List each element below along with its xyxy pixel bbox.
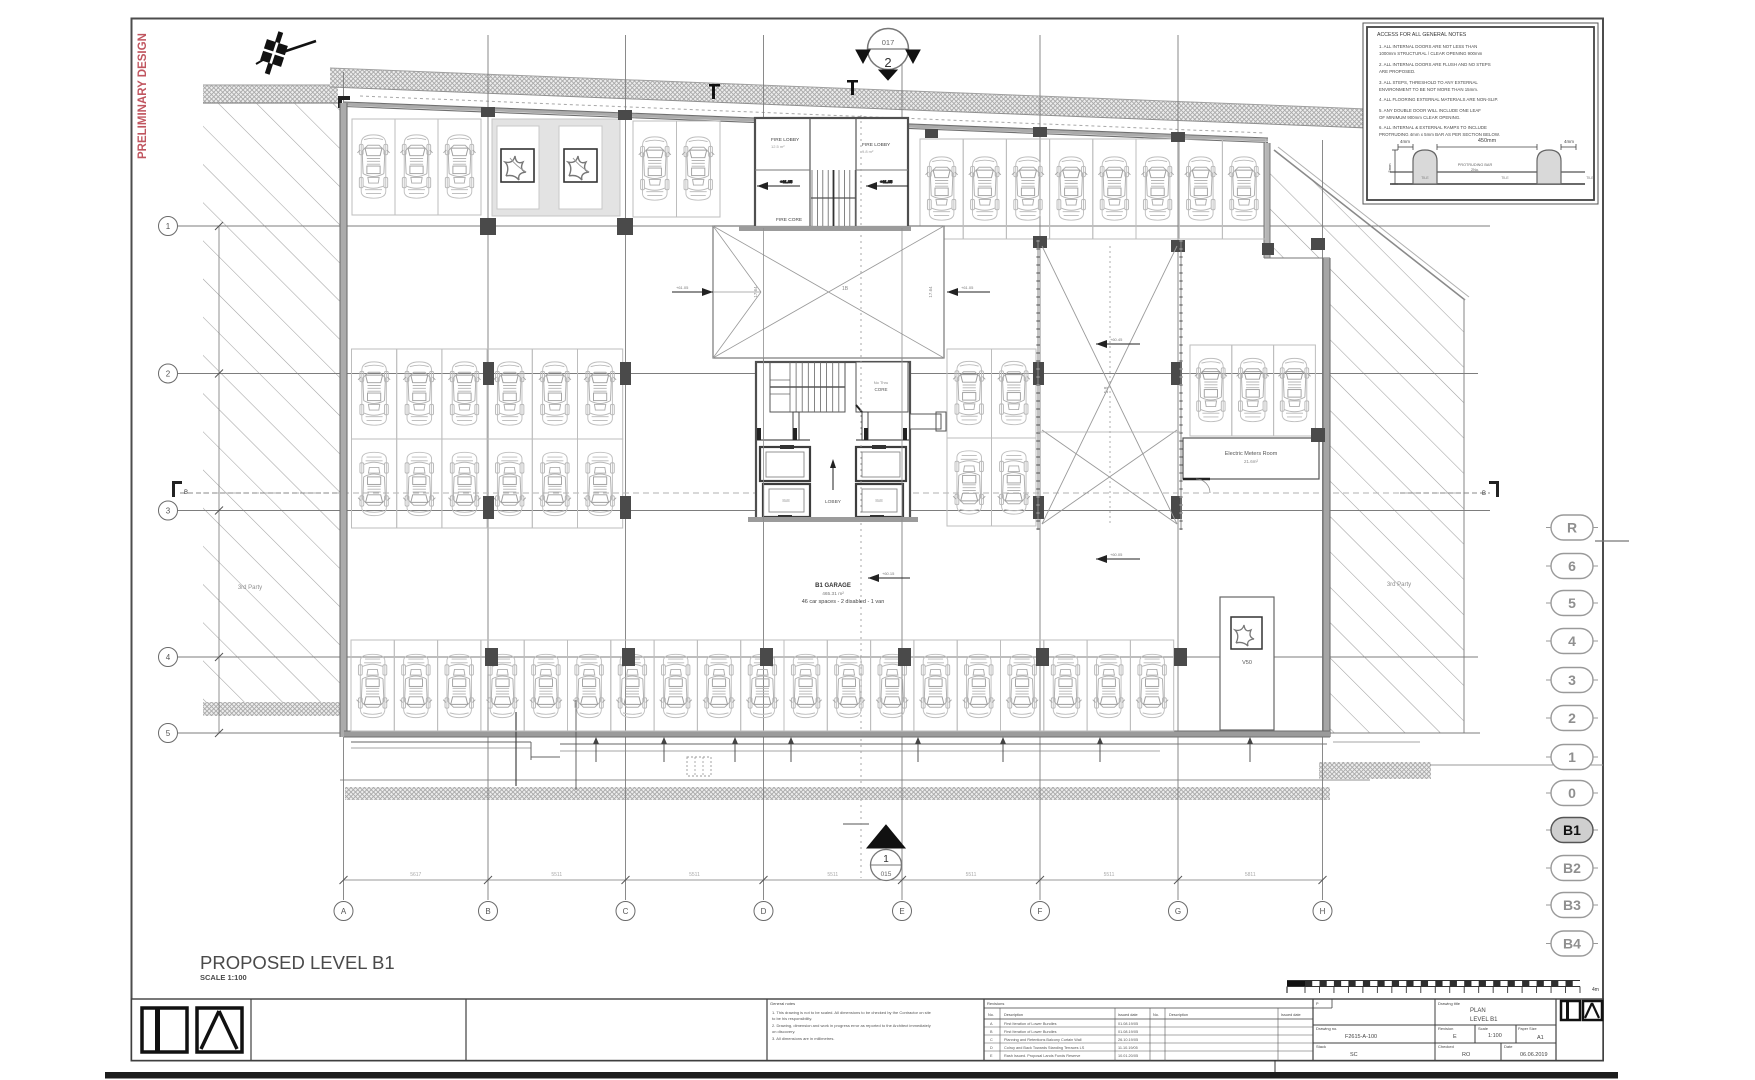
svg-text:5617: 5617	[410, 872, 421, 878]
svg-text:ENVIRONMENT TO BE NOT MORE THA: ENVIRONMENT TO BE NOT MORE THAN 15mm.	[1379, 87, 1478, 92]
svg-text:4mm: 4mm	[1564, 139, 1574, 144]
svg-text:FIRE CORE: FIRE CORE	[776, 217, 802, 223]
svg-text:PROTRUDING 4mm x 5mm BAR AS PE: PROTRUDING 4mm x 5mm BAR AS PER SECTION …	[1379, 132, 1500, 137]
svg-text:11.10.19/05: 11.10.19/05	[1118, 1046, 1138, 1050]
svg-text:3: 3	[1568, 672, 1576, 688]
svg-text:Date: Date	[1504, 1044, 1513, 1049]
svg-text:21.6m²: 21.6m²	[1244, 459, 1259, 464]
svg-text:Checked: Checked	[1438, 1044, 1454, 1049]
svg-text:No Thru: No Thru	[874, 380, 888, 385]
svg-text:01.08.19/05: 01.08.19/05	[1118, 1022, 1138, 1026]
svg-text:5: 5	[166, 729, 171, 738]
svg-text:TILE: TILE	[1501, 176, 1509, 180]
svg-text:015: 015	[881, 871, 892, 878]
svg-text:4: 4	[1568, 633, 1576, 649]
svg-text:R: R	[1567, 520, 1577, 536]
svg-text:RO: RO	[1462, 1052, 1471, 1058]
svg-text:5511: 5511	[551, 872, 562, 878]
svg-text:1:8: 1:8	[1104, 386, 1110, 393]
svg-text:First Iteration of Lower Bundl: First Iteration of Lower Bundles	[1004, 1022, 1057, 1026]
svg-text:B: B	[1482, 491, 1486, 497]
svg-text:Paper Size: Paper Size	[1518, 1027, 1537, 1031]
svg-text:5511: 5511	[827, 872, 838, 878]
svg-text:2: 2	[166, 370, 171, 379]
svg-text:on discovery.: on discovery.	[772, 1029, 795, 1034]
svg-text:6: 6	[1568, 558, 1576, 574]
svg-text:17.64: 17.64	[928, 286, 933, 298]
svg-text:1000mm STRUCTURAL / CLEAR OPEN: 1000mm STRUCTURAL / CLEAR OPENING 900mm	[1379, 51, 1483, 56]
svg-text:3. All dimensions are in mill: 3. All dimensions are in millimetres.	[772, 1036, 834, 1041]
svg-text:B: B	[184, 490, 188, 496]
svg-text:Stack: Stack	[1316, 1044, 1326, 1049]
svg-text:8x8: 8x8	[875, 498, 883, 503]
svg-text:+61.05: +61.05	[676, 285, 689, 290]
svg-text:SCALE 1:100: SCALE 1:100	[200, 973, 247, 982]
svg-text:17.64: 17.64	[753, 286, 758, 298]
svg-text:2No.: 2No.	[1471, 168, 1479, 172]
svg-text:G: G	[1175, 907, 1181, 916]
svg-text:46 car spaces - 2 disabled - 1: 46 car spaces - 2 disabled - 1 van	[802, 599, 885, 605]
svg-text:D: D	[761, 907, 767, 916]
svg-text:B1: B1	[1563, 822, 1581, 838]
svg-text:0: 0	[1568, 785, 1576, 801]
svg-text:PROPOSED LEVEL B1: PROPOSED LEVEL B1	[200, 952, 395, 973]
svg-text:E: E	[1453, 1034, 1457, 1040]
svg-text:First Iteration of Lower Bundl: First Iteration of Lower Bundles	[1004, 1030, 1057, 1034]
svg-text:PLAN: PLAN	[1470, 1008, 1486, 1014]
svg-text:+60.15: +60.15	[882, 571, 895, 576]
svg-text:2: 2	[1568, 710, 1576, 726]
svg-text:C: C	[623, 907, 629, 916]
svg-text:2. ALL INTERNAL DOORS ARE FLU: 2. ALL INTERNAL DOORS ARE FLUSH AND NO S…	[1379, 62, 1491, 67]
svg-text:D: D	[990, 1046, 993, 1050]
svg-text:1: 1	[166, 222, 171, 231]
svg-text:4. ALL FLOORING EXTERNAL MATE: 4. ALL FLOORING EXTERNAL MATERIALS ARE N…	[1379, 97, 1498, 102]
svg-text:5511: 5511	[966, 872, 977, 878]
svg-text:Description: Description	[1004, 1013, 1023, 1017]
svg-text:5. ANY DOUBLE DOOR WILL INCLU: 5. ANY DOUBLE DOOR WILL INCLUDE ONE LEAF	[1379, 108, 1481, 113]
svg-text:C: C	[990, 1038, 993, 1042]
svg-text:+61.05: +61.05	[961, 285, 974, 290]
svg-text:4m: 4m	[1592, 987, 1599, 993]
svg-text:8x8: 8x8	[782, 498, 790, 503]
svg-text:Colruy and Back Towards Standi: Colruy and Back Towards Standing Terrace…	[1004, 1046, 1085, 1050]
svg-text:General notes: General notes	[770, 1001, 795, 1006]
svg-text:Planning and Retentions Balcon: Planning and Retentions Balcony Curtain …	[1004, 1038, 1082, 1042]
svg-text:26.10.19/05: 26.10.19/05	[1118, 1038, 1138, 1042]
svg-text:A: A	[341, 907, 347, 916]
svg-text:+60.45: +60.45	[1110, 337, 1123, 342]
svg-text:2: 2	[884, 55, 891, 70]
svg-text:1: 1	[1568, 749, 1576, 765]
svg-text:CORE: CORE	[874, 387, 887, 392]
svg-text:Drawing title: Drawing title	[1438, 1001, 1461, 1006]
svg-text:5811: 5811	[1245, 872, 1256, 878]
svg-text:B2: B2	[1563, 860, 1581, 876]
svg-text:Revisions: Revisions	[987, 1001, 1004, 1006]
svg-text:1:100: 1:100	[1488, 1033, 1502, 1039]
svg-text:B4: B4	[1563, 936, 1581, 952]
svg-text:1. ALL INTERNAL DOORS ARE NOT: 1. ALL INTERNAL DOORS ARE NOT LESS THAN	[1379, 44, 1477, 49]
svg-text:PRELIMINARY DESIGN: PRELIMINARY DESIGN	[137, 33, 149, 159]
svg-text:E: E	[899, 907, 904, 916]
svg-text:FIRE LOBBY: FIRE LOBBY	[862, 142, 891, 148]
svg-text:3: 3	[166, 507, 171, 516]
svg-text:Electric Meters Room: Electric Meters Room	[1225, 451, 1278, 457]
svg-text:5511: 5511	[1104, 872, 1115, 878]
svg-text:Rash Issued. Proposal Lands Fu: Rash Issued. Proposal Lands Funds Reserv…	[1004, 1054, 1080, 1058]
svg-text:A1: A1	[1537, 1035, 1544, 1041]
svg-text:to be his responsibility.: to be his responsibility.	[772, 1016, 812, 1021]
svg-text:No.: No.	[1153, 1013, 1159, 1017]
svg-text:H: H	[1320, 907, 1326, 916]
svg-text:B1 GARAGE: B1 GARAGE	[815, 583, 851, 589]
svg-text:10.01.20/05: 10.01.20/05	[1118, 1054, 1138, 1058]
svg-text:06.06.2019: 06.06.2019	[1520, 1052, 1548, 1058]
svg-text:Issued date: Issued date	[1118, 1013, 1138, 1017]
svg-text:PROTRUDING BAR: PROTRUDING BAR	[1458, 163, 1493, 167]
svg-text:3. ALL STEPS, THRESHOLD TO AN: 3. ALL STEPS, THRESHOLD TO ANY EXTERNAL	[1379, 80, 1478, 85]
svg-text:3rd Party: 3rd Party	[1387, 582, 1411, 588]
svg-text:5511: 5511	[689, 872, 700, 878]
svg-text:5: 5	[1568, 595, 1576, 611]
svg-text:9.8 m²: 9.8 m²	[862, 149, 874, 154]
svg-text:V50: V50	[1242, 660, 1252, 666]
svg-text:+61.05: +61.05	[780, 179, 793, 184]
svg-text:SC: SC	[1350, 1052, 1358, 1058]
svg-text:FIRE LOBBY: FIRE LOBBY	[771, 137, 800, 143]
svg-text:1B: 1B	[842, 286, 849, 292]
svg-text:F2615-A-100: F2615-A-100	[1345, 1034, 1377, 1040]
svg-text:4mm: 4mm	[1400, 139, 1410, 144]
svg-text:Issued date: Issued date	[1281, 1013, 1301, 1017]
svg-text:01.08.19/05: 01.08.19/05	[1118, 1030, 1138, 1034]
svg-text:Description: Description	[1169, 1013, 1188, 1017]
svg-text:Drawing no.: Drawing no.	[1316, 1026, 1337, 1031]
svg-text:4: 4	[166, 653, 171, 662]
svg-text:TILE: TILE	[1586, 176, 1594, 180]
svg-text:ACCESS FOR ALL GENERAL NOTES: ACCESS FOR ALL GENERAL NOTES	[1377, 32, 1467, 38]
svg-text:017: 017	[882, 38, 895, 47]
svg-text:TILE: TILE	[1421, 176, 1429, 180]
svg-text:3rd Party: 3rd Party	[238, 585, 262, 591]
svg-text:450mm: 450mm	[1478, 138, 1497, 144]
svg-text:12.5 m²: 12.5 m²	[771, 144, 785, 149]
svg-text:1: 1	[883, 854, 889, 865]
svg-text:ARE PROPOSED.: ARE PROPOSED.	[1379, 69, 1415, 74]
svg-text:6. ALL INTERNAL & EXTERNAL RA: 6. ALL INTERNAL & EXTERNAL RAMPS TO INCL…	[1379, 125, 1487, 130]
svg-text:OF MINIMUM 900mm CLEAR OPENING: OF MINIMUM 900mm CLEAR OPENING.	[1379, 115, 1460, 120]
svg-text:Revision: Revision	[1438, 1026, 1453, 1031]
svg-text:+61.05: +61.05	[880, 179, 893, 184]
svg-text:LOBBY: LOBBY	[825, 499, 842, 505]
svg-text:B: B	[485, 907, 490, 916]
svg-text:1. This drawing is not to be: 1. This drawing is not to be scaled. All…	[772, 1010, 932, 1015]
svg-text:Scale: Scale	[1478, 1026, 1489, 1031]
svg-text:B3: B3	[1563, 897, 1581, 913]
svg-text:+60.05: +60.05	[1110, 552, 1123, 557]
svg-text:LEVEL B1: LEVEL B1	[1470, 1017, 1498, 1023]
svg-text:2. Drawing, dimension and wor: 2. Drawing, dimension and work in progre…	[772, 1023, 931, 1028]
svg-text:No.: No.	[988, 1013, 994, 1017]
svg-text:F: F	[1038, 907, 1043, 916]
svg-text:5mm: 5mm	[1387, 163, 1392, 173]
svg-text:465.31 m²: 465.31 m²	[822, 591, 844, 597]
